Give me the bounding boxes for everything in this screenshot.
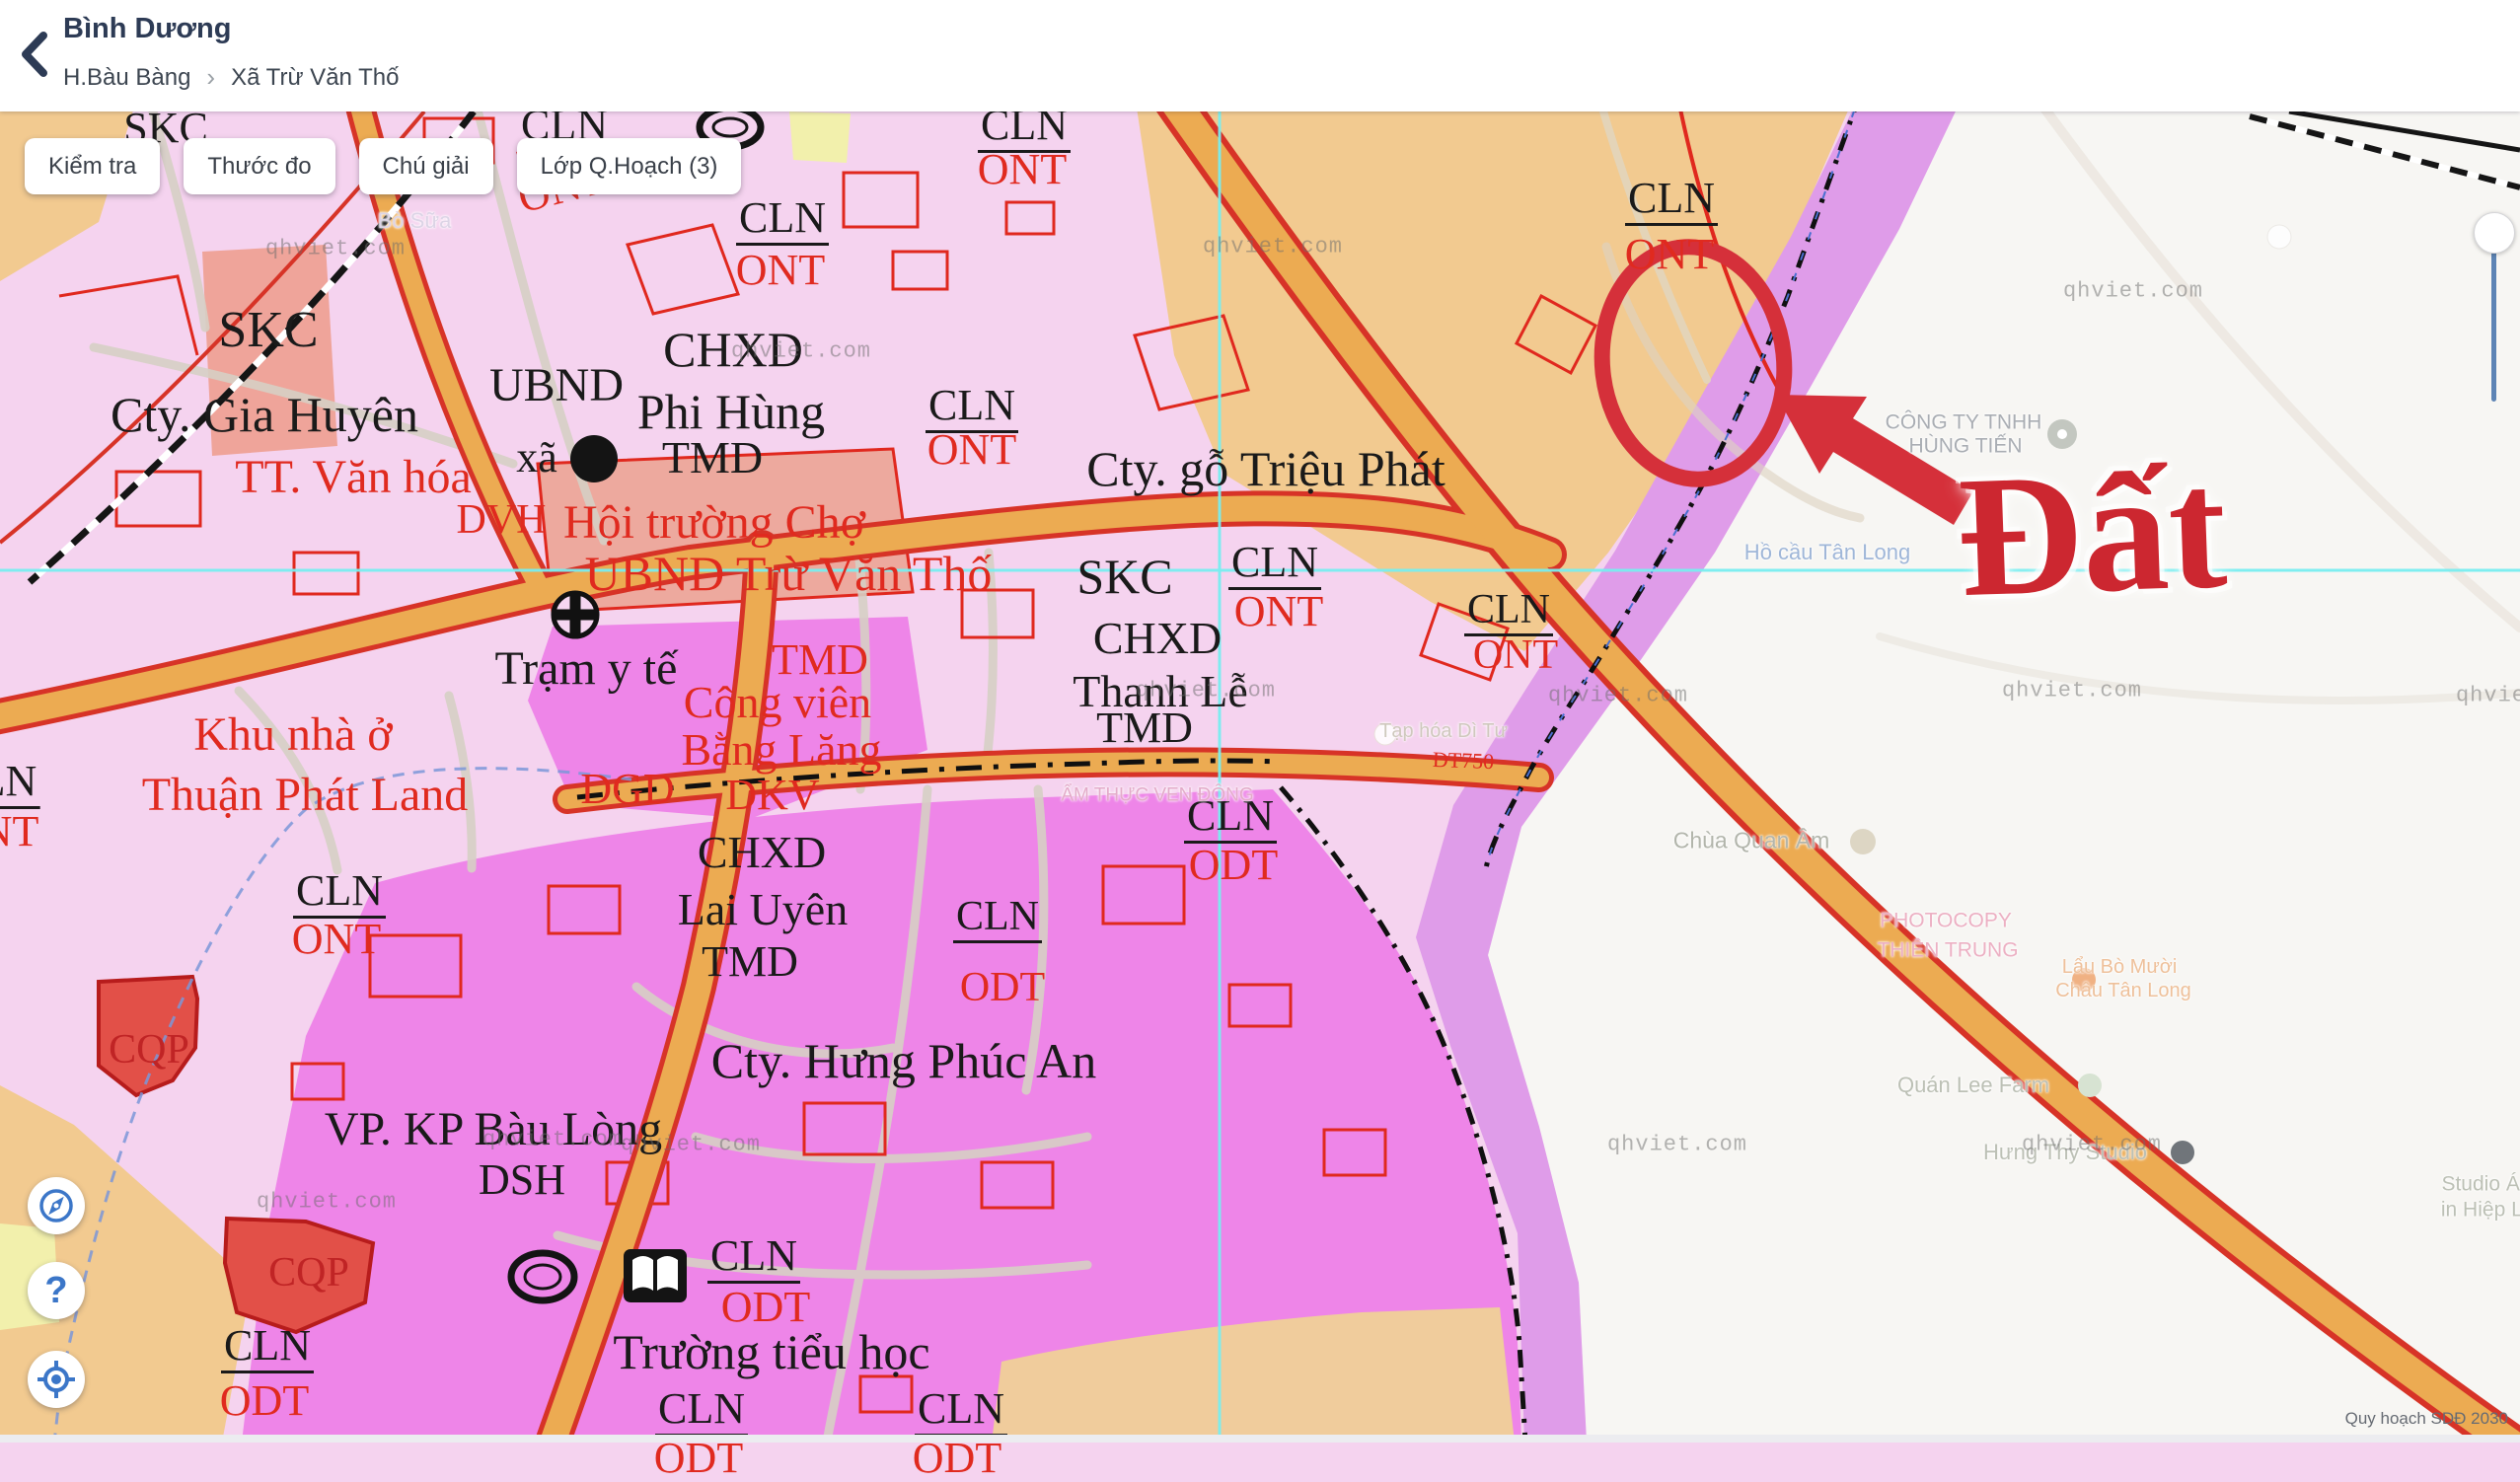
toolbar: Kiểm tra Thước đo Chú giải Lớp Q.Hoạch (… [25,138,741,194]
health-station-icon [552,591,599,638]
poi-pin-icon [2267,225,2291,249]
compass-icon [37,1187,75,1224]
breadcrumb-province[interactable]: H.Bàu Bàng [63,64,190,92]
breadcrumb: H.Bàu Bàng › Xã Trừ Văn Thố [63,62,399,93]
zone-yellow-top [789,111,851,163]
zone-label: ODT [654,1437,743,1480]
planning-layers-button[interactable]: Lớp Q.Hoạch (3) [517,138,742,194]
my-location-button[interactable] [28,1351,85,1408]
school-book-icon [624,1249,687,1302]
inspect-button[interactable]: Kiểm tra [25,138,160,194]
zoom-slider-knob[interactable] [2474,212,2515,254]
map-app: { "header": { "title": "Bình Dương", "br… [0,0,2520,1443]
page-title: Bình Dương [63,13,231,45]
bottom-bar [0,1435,2520,1443]
help-button[interactable]: ? [28,1262,85,1319]
header-bar: Bình Dương H.Bàu Bàng › Xã Trừ Văn Thố [0,0,2520,111]
chevron-left-icon [18,30,51,79]
poi-pin-icon [1374,723,1396,745]
breadcrumb-separator-icon: › [206,62,215,93]
poi-pin-icon [2078,1074,2102,1097]
compass-button[interactable] [28,1177,85,1234]
poi-pin-icon [2072,968,2096,992]
measure-button[interactable]: Thước đo [184,138,334,194]
zone-label: ODT [913,1437,1001,1480]
legend-button[interactable]: Chú giải [359,138,493,194]
poi-pin-icon [1850,829,1876,854]
back-button[interactable] [12,28,57,83]
poi-pin-icon [2171,1141,2194,1164]
gps-crosshair-icon [37,1360,76,1399]
map-credit: Quy hoạch SDĐ 2030 [2345,1409,2508,1429]
zoom-slider-track[interactable] [2491,249,2496,402]
breadcrumb-commune: Xã Trừ Văn Thố [231,64,399,92]
commune-center-dot [570,435,618,482]
question-mark-icon: ? [44,1270,67,1312]
map-canvas[interactable] [0,0,2520,1443]
annotation-text: Đất [1955,442,2229,624]
